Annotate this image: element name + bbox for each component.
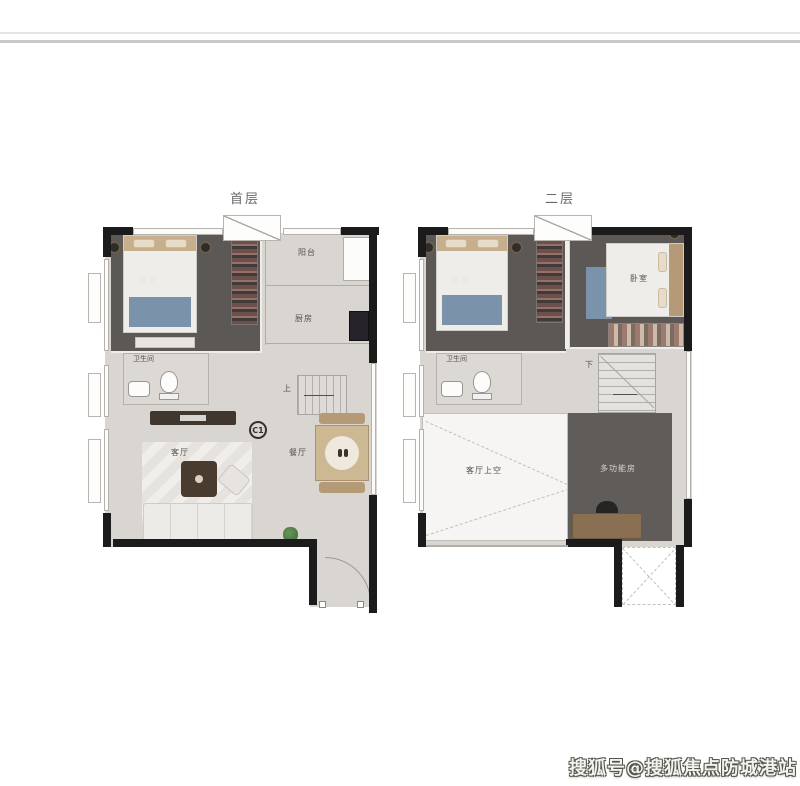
stairs-arrow [304, 395, 334, 396]
desk [572, 513, 642, 539]
toilet-tank [472, 393, 492, 400]
wall-segment [566, 539, 622, 547]
kitchen-label: 厨房 [295, 315, 313, 323]
wall-segment [684, 499, 692, 547]
bathroom-label: 卫生间 [446, 356, 467, 363]
cross-diagonal [623, 546, 678, 604]
void-cross-area [622, 547, 676, 605]
pillow [445, 239, 467, 248]
pillow [477, 239, 499, 248]
exterior-ledge [88, 439, 101, 503]
window-segment [448, 228, 534, 235]
bathroom-label: 卫生间 [133, 356, 154, 363]
tableware [344, 449, 348, 457]
bedroom2-label: 卧室 [630, 275, 648, 283]
pillow [658, 252, 667, 272]
window-segment [104, 259, 109, 351]
sofa [143, 503, 253, 543]
bedside-lamp [510, 241, 523, 254]
dining-chair [319, 482, 365, 493]
bed [123, 235, 197, 333]
wall-segment [590, 227, 692, 235]
exterior-ledge [88, 373, 101, 417]
exterior-ledge [403, 373, 416, 417]
window-segment [283, 228, 341, 235]
toilet [160, 371, 178, 393]
coffee-table [181, 461, 217, 497]
stairs [598, 353, 656, 413]
window-segment [419, 259, 424, 351]
living-void-label: 客厅上空 [466, 467, 502, 475]
watermark: 搜狐号@搜狐焦点防城港站 [569, 754, 797, 780]
ac-unit-platform [223, 215, 281, 241]
bedroom1-label: 卧室 [452, 277, 470, 285]
cross-diagonal [622, 548, 677, 606]
pillow [165, 239, 187, 248]
bedside-lamp [199, 241, 212, 254]
bedroom-label: 卧室 [139, 277, 157, 285]
bathroom-sink [441, 381, 463, 397]
wall-segment [676, 545, 684, 607]
void-bottom-line [422, 545, 568, 547]
wardrobe [231, 239, 258, 325]
kitchen-sink [343, 237, 371, 281]
tableware [195, 475, 203, 483]
wall-segment [309, 539, 317, 605]
exterior-ledge [403, 273, 416, 323]
bed [436, 235, 508, 331]
second-floor-plan: 卧室 卧室 卫生间 下 客厅上空 多功能房 [410, 215, 710, 615]
tv [180, 415, 206, 421]
door-post [357, 601, 364, 608]
wall-segment [103, 227, 111, 257]
wall-segment [614, 545, 622, 607]
window-segment [686, 351, 691, 499]
tableware [338, 449, 342, 457]
kitchen-appliance [349, 311, 369, 341]
stairs [297, 375, 347, 415]
dining-chair [319, 413, 365, 424]
dresser [135, 337, 195, 348]
stairs-diagonal [600, 356, 654, 408]
bed-headboard [669, 244, 683, 316]
second-floor-title: 二层 [410, 188, 710, 207]
window-segment [419, 365, 424, 417]
wall-segment [418, 227, 426, 257]
toilet-tank [159, 393, 179, 400]
toilet [473, 371, 491, 393]
living-void [422, 413, 568, 541]
pillow [658, 288, 667, 308]
frame-line-1 [0, 32, 800, 34]
open-wardrobe [608, 323, 684, 347]
window-segment [104, 365, 109, 417]
dining-label: 餐厅 [289, 449, 307, 457]
wall-segment [113, 539, 315, 547]
stairs-arrow [613, 394, 637, 395]
wall-segment [418, 513, 426, 547]
pillow [133, 239, 155, 248]
exterior-ledge [88, 273, 101, 323]
stairs-down-label: 下 [585, 361, 594, 369]
multi-room-label: 多功能房 [600, 465, 636, 473]
first-floor-title: 首层 [95, 188, 395, 207]
wall-segment [684, 227, 692, 351]
ac-unit-platform [534, 215, 592, 241]
first-floor-plan: 卧室 阳台 厨房 卫生间 上 客厅 餐厅 C1 [95, 215, 395, 615]
window-segment [371, 363, 376, 495]
table-runner [325, 436, 359, 470]
bathroom-sink [128, 381, 150, 397]
tv-console [150, 411, 236, 425]
partition [265, 285, 371, 286]
wall-segment [369, 227, 377, 363]
wall-segment [369, 495, 377, 613]
partition [265, 235, 266, 345]
bed-blanket [129, 297, 191, 327]
balcony-label: 阳台 [298, 249, 316, 257]
partition [265, 343, 371, 344]
dining-table [315, 425, 369, 481]
exterior-ledge [403, 439, 416, 503]
partition-wall [565, 235, 569, 349]
door-post [319, 601, 326, 608]
stairs-up-label: 上 [283, 385, 292, 393]
window-segment [104, 429, 109, 511]
frame-line-2 [0, 40, 800, 43]
wall-segment [103, 513, 111, 547]
unit-badge: C1 [249, 421, 267, 439]
bed-blanket [442, 295, 502, 325]
window-segment [133, 228, 223, 235]
window-segment [419, 429, 424, 511]
wardrobe [536, 239, 563, 323]
living-label: 客厅 [171, 449, 189, 457]
